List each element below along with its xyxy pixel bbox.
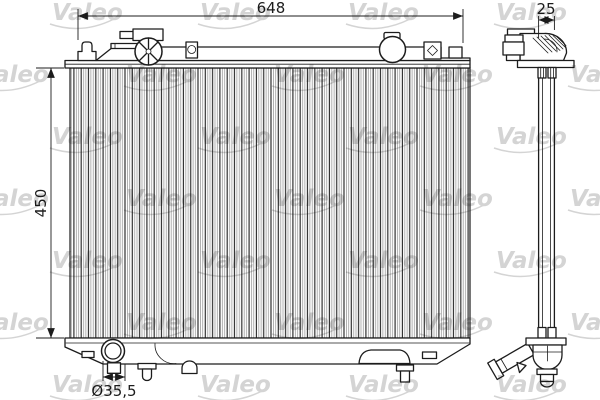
brand-watermark: Valeo [348, 248, 419, 274]
brand-watermark: Valeo [0, 62, 49, 88]
brand-watermark: Valeo [126, 186, 197, 212]
brand-watermark: Valeo [496, 124, 567, 150]
drain-plug [138, 364, 156, 381]
brand-watermark: Valeo [274, 186, 345, 212]
brand-watermark: Valeo [126, 310, 197, 336]
brand-watermark: Valeo [0, 310, 49, 336]
brand-watermark: Valeo [348, 0, 419, 26]
brand-watermark: Valeo [274, 310, 345, 336]
brand-watermark: Valeo [422, 62, 493, 88]
bottom-small-rect [423, 352, 437, 359]
brand-watermark: Valeo [200, 372, 271, 398]
mount-bracket-small [449, 47, 462, 58]
mount-bracket-diamond [424, 42, 441, 59]
hose-connector [102, 340, 125, 374]
front-view: 648 450 Ø35,5 [32, 0, 470, 400]
sensor-fitting [186, 42, 198, 58]
brand-watermark: Valeo [348, 372, 419, 398]
side-bottom-flange [526, 338, 566, 345]
brand-watermark: Valeo [0, 186, 49, 212]
side-top-flange [518, 61, 575, 68]
side-view: 25 [488, 0, 574, 387]
brand-watermark: Valeo [200, 248, 271, 274]
brand-watermark: Valeo [570, 310, 600, 336]
brand-watermark: Valeo [274, 62, 345, 88]
brand-watermark: Valeo [496, 0, 567, 26]
brand-watermark: Valeo [570, 186, 600, 212]
brand-watermark: Valeo [496, 248, 567, 274]
brand-watermark: Valeo [200, 0, 271, 26]
mount-dome [182, 361, 197, 374]
brand-watermark: Valeo [422, 186, 493, 212]
brand-watermark: Valeo [52, 372, 123, 398]
brand-watermark: Valeo [570, 62, 600, 88]
radiator-technical-drawing: 648 450 Ø35,5 [0, 0, 600, 400]
brand-watermark: Valeo [422, 310, 493, 336]
brand-watermark: Valeo [126, 62, 197, 88]
drawing-canvas: 648 450 Ø35,5 [0, 0, 600, 400]
bottom-notch [359, 350, 410, 364]
side-core-column [538, 78, 556, 338]
brand-watermark: Valeo [52, 124, 123, 150]
side-top-tabs [538, 68, 556, 79]
bottom-slot [82, 352, 94, 358]
side-bottom-spike [517, 363, 526, 373]
brand-watermark: Valeo [200, 124, 271, 150]
top-left-mount-post [78, 42, 96, 61]
brand-watermark: Valeo [52, 0, 123, 26]
brand-watermark: Valeo [52, 248, 123, 274]
filler-neck [380, 33, 406, 63]
brand-watermark: Valeo [496, 372, 567, 398]
side-inlet-elbow [520, 33, 567, 60]
brand-watermark: Valeo [348, 124, 419, 150]
